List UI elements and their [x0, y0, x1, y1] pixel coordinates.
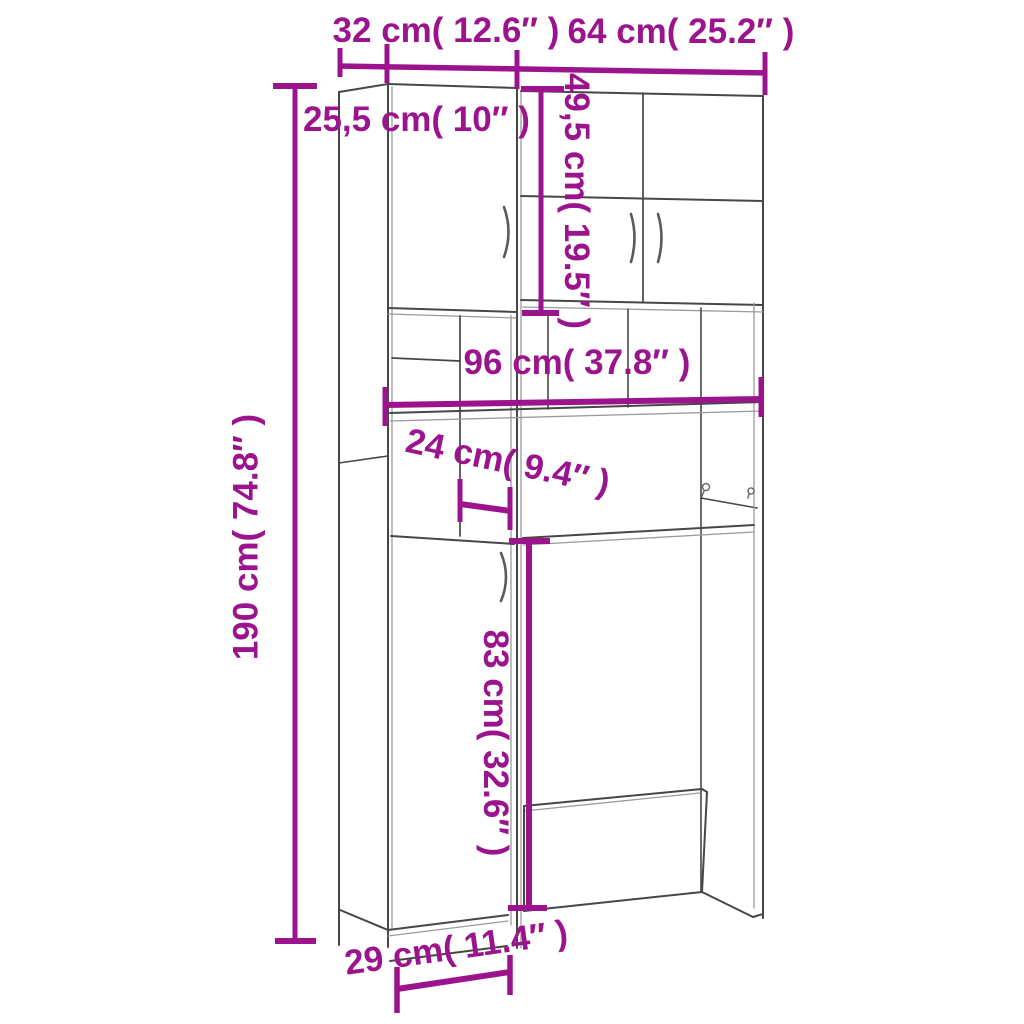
label-height-upper-cabinet: 49,5 cm( 19.5″ )	[557, 73, 596, 329]
cabinet-dimension-diagram: 32 cm( 12.6″ ) 64 cm( 25.2″ ) 25,5 cm( 1…	[0, 0, 1024, 1024]
label-depth-top: 25,5 cm( 10″ )	[303, 100, 530, 139]
label-width-middle-shelf: 96 cm( 37.8″ )	[464, 343, 691, 382]
dimension-diagram-canvas: 32 cm( 12.6″ ) 64 cm( 25.2″ ) 25,5 cm( 1…	[0, 0, 1024, 1024]
label-height-washer-space: 83 cm( 32.6″ )	[476, 630, 515, 857]
label-height-total: 190 cm( 74.8″ )	[226, 414, 265, 660]
label-width-left: 32 cm( 12.6″ )	[333, 11, 560, 50]
label-width-right: 64 cm( 25.2″ )	[568, 12, 795, 51]
